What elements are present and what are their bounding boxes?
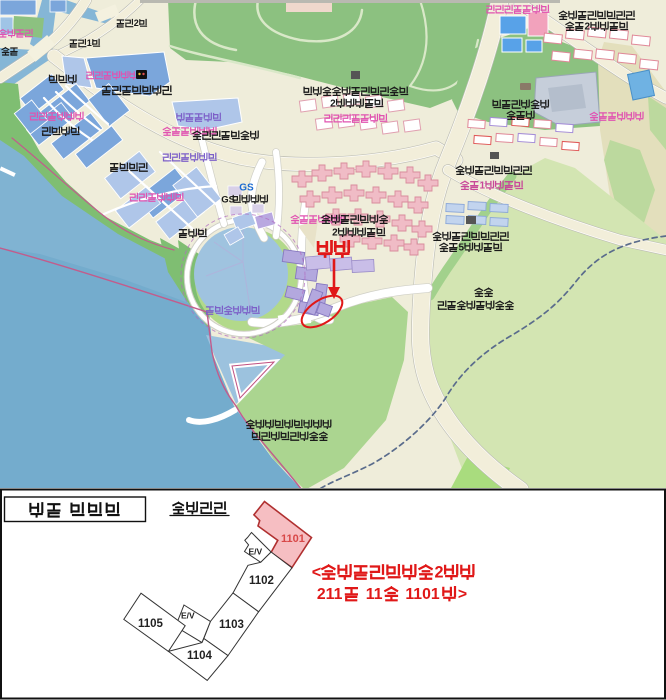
svg-text:11: 11 <box>366 586 383 603</box>
svg-text:GS: GS <box>239 183 254 194</box>
svg-text:1: 1 <box>87 38 92 48</box>
svg-text:2: 2 <box>330 99 336 110</box>
svg-text:1103: 1103 <box>219 619 244 631</box>
svg-text:1105: 1105 <box>138 618 164 630</box>
svg-text:E/V: E/V <box>181 611 195 621</box>
svg-text:>: > <box>458 586 467 603</box>
svg-text:2: 2 <box>332 228 338 239</box>
svg-text:5: 5 <box>459 243 465 254</box>
svg-text:1101: 1101 <box>281 533 305 545</box>
svg-text:1104: 1104 <box>187 650 213 662</box>
svg-text:211: 211 <box>317 586 343 603</box>
svg-text:1102: 1102 <box>249 575 274 587</box>
svg-text:2: 2 <box>435 563 444 581</box>
svg-text:E/V: E/V <box>249 547 263 557</box>
svg-text:2: 2 <box>585 22 591 33</box>
svg-text:2: 2 <box>134 18 139 28</box>
svg-text:1: 1 <box>480 181 486 192</box>
svg-text:1101: 1101 <box>405 586 439 603</box>
svg-text:GS: GS <box>221 194 235 205</box>
svg-text:<: < <box>312 563 321 581</box>
